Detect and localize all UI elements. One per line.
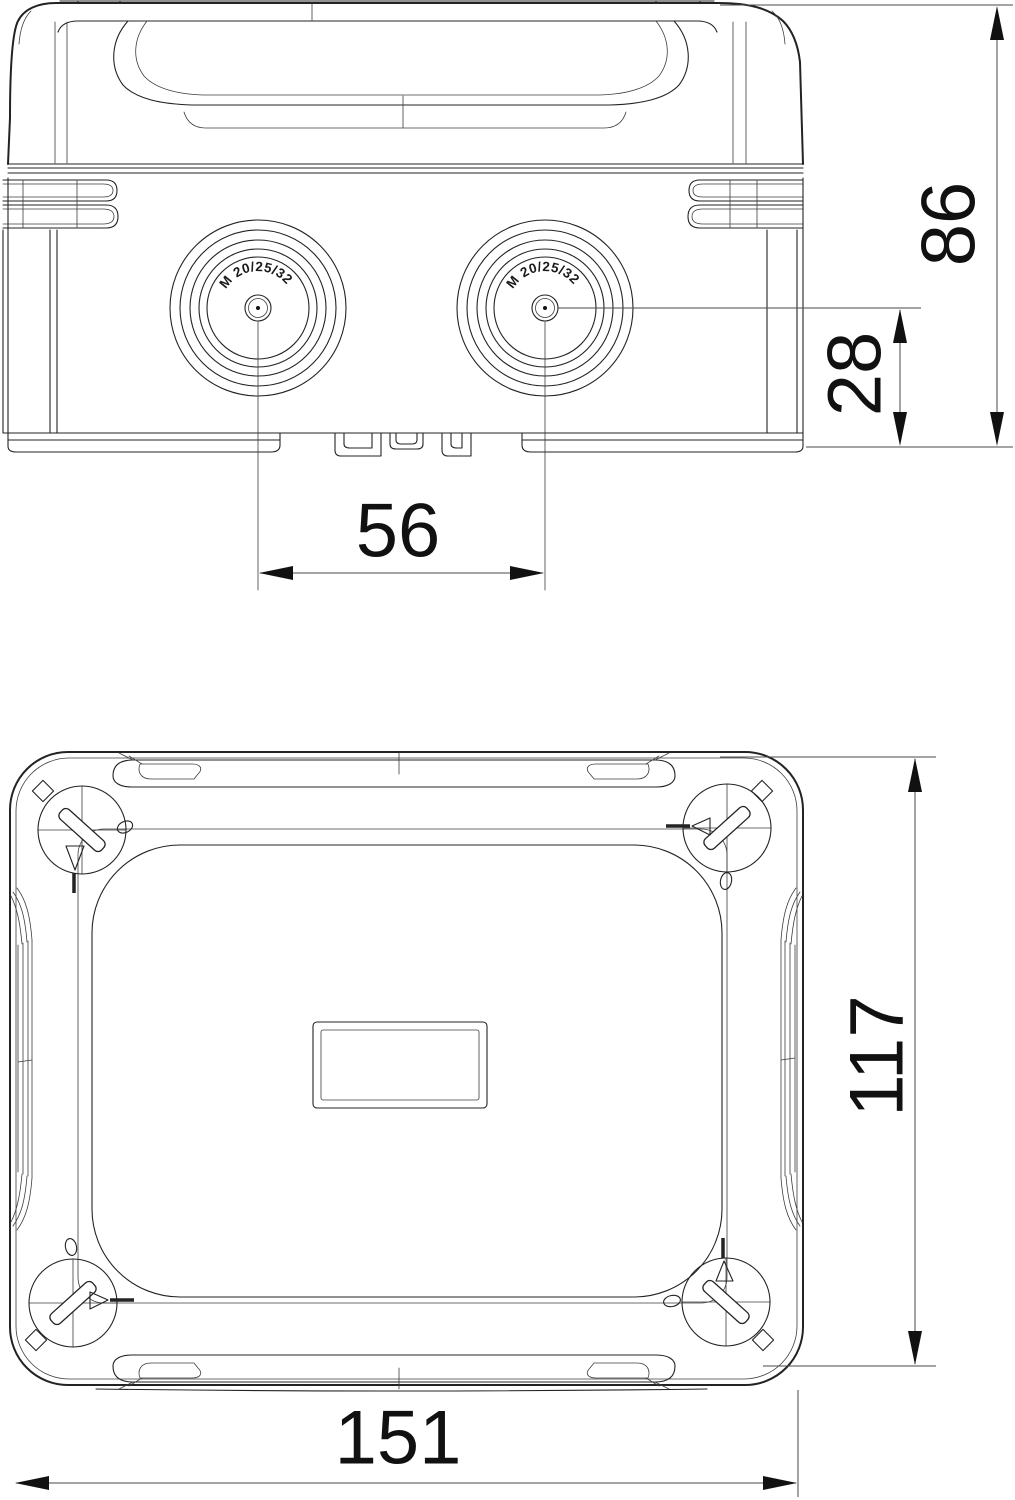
lid-outline (8, 3, 803, 164)
arrowhead-left (15, 1476, 49, 1490)
corner-screw-bottom-right (663, 1238, 774, 1351)
direction-triangle (716, 1261, 733, 1281)
dimension-117: 117 (720, 757, 936, 1366)
center-dot (543, 306, 547, 310)
lid-seam-ticks (312, 3, 403, 128)
corner-notch (752, 1329, 773, 1350)
pilot-hole (115, 819, 134, 836)
box-bottom-tilt-line (96, 1389, 707, 1391)
grip-channel-bottom (113, 1355, 675, 1389)
corner-notch (32, 780, 53, 801)
arrowhead-up (990, 6, 1004, 40)
arrowhead-right (763, 1476, 797, 1490)
junction-box-dimension-drawing: M 20/25/32 M 20/25/32 (0, 0, 1015, 1500)
corner-screw-bottom-left (25, 1238, 134, 1351)
lid-grip-band-lower-line (184, 112, 626, 128)
dim-label-56: 56 (356, 489, 441, 574)
lid-grip-band-outer (114, 21, 689, 105)
dim-label-86: 86 (907, 182, 992, 267)
side-rail-right (781, 888, 802, 1230)
lid-top-second-line (58, 21, 717, 32)
arrowhead-up (908, 758, 922, 792)
box-second-contour (16, 758, 797, 1379)
dimension-56: 56 (259, 489, 544, 581)
corner-notch (751, 780, 772, 801)
lid-inner-walls (55, 22, 746, 163)
center-dot (256, 306, 260, 310)
dimension-28: 28 (558, 308, 921, 446)
technical-drawing-canvas: M 20/25/32 M 20/25/32 (0, 0, 1015, 1500)
top-view (10, 752, 803, 1391)
pilot-hole (64, 1238, 78, 1257)
label-field (313, 1022, 487, 1108)
lid-skirt-contour (78, 829, 727, 1303)
arrowhead-down (990, 412, 1004, 446)
lid-face-panel (92, 845, 722, 1297)
bottom-feet-and-tabs (8, 433, 803, 456)
dim-label-151: 151 (335, 1396, 462, 1481)
corner-screw-top-left (32, 780, 134, 893)
side-rail-left (11, 888, 32, 1230)
lid-corner-inner-curves (19, 11, 785, 44)
body-walls (3, 178, 803, 433)
dimension-151: 151 (15, 1390, 798, 1497)
lid-grip-band-inner (136, 21, 668, 95)
corner-screw-top-right (666, 780, 773, 890)
dim-label-28: 28 (813, 332, 898, 417)
lid-body-joint-lines (8, 164, 803, 173)
arrowhead-right (510, 566, 544, 580)
arrowhead-down (908, 1331, 922, 1365)
corner-notch (25, 1329, 46, 1350)
pilot-hole (719, 872, 733, 891)
left-latch (3, 180, 118, 228)
right-latch (688, 180, 803, 228)
dim-label-117: 117 (835, 995, 920, 1116)
direction-triangle (66, 846, 84, 870)
arrowhead-left (259, 566, 293, 580)
pilot-hole (663, 1294, 682, 1308)
direction-triangle (692, 818, 710, 835)
